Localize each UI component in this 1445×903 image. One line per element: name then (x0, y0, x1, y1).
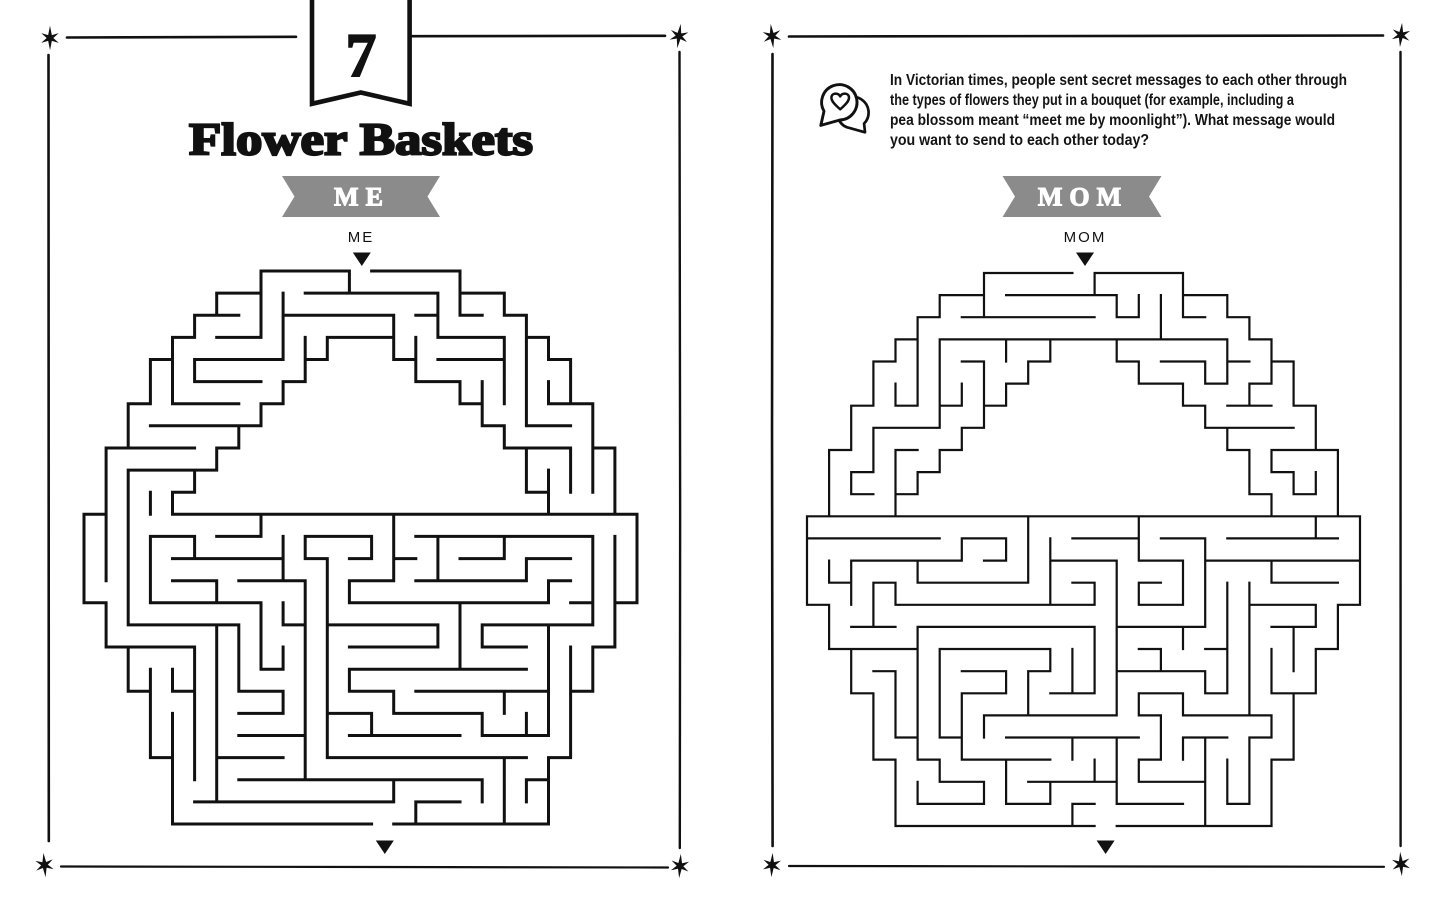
svg-text:7: 7 (346, 22, 377, 90)
svg-text:In Victorian times, people sen: In Victorian times, people sent secret m… (890, 72, 1347, 89)
svg-text:you want to send to each other: you want to send to each other today? (890, 132, 1149, 149)
svg-text:MOM: MOM (1064, 229, 1107, 246)
svg-text:Flower Baskets: Flower Baskets (189, 115, 533, 165)
svg-text:MOM: MOM (1038, 183, 1128, 212)
svg-text:ME: ME (348, 229, 375, 246)
svg-text:ME: ME (334, 183, 390, 212)
svg-text:pea blossom meant “meet me by: pea blossom meant “meet me by moonlight”… (890, 112, 1335, 129)
svg-text:the types of flowers they put: the types of flowers they put in a bouqu… (890, 92, 1294, 109)
